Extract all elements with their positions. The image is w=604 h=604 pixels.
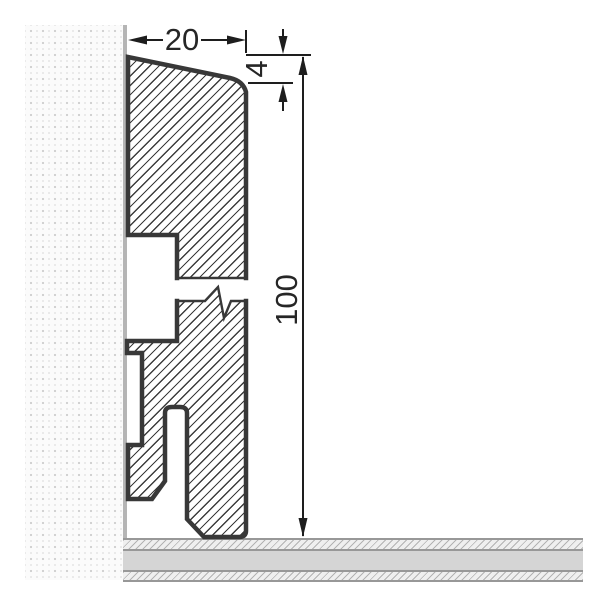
- width-arrow-left-icon: [128, 36, 147, 45]
- width-arrow-right-icon: [227, 36, 246, 45]
- height-dim-label: 100: [269, 274, 304, 326]
- outline-and-dimension-layer: 20 4 100: [0, 0, 604, 604]
- skirting-profile-lower-outline: [127, 301, 246, 537]
- skirting-profile-upper-outline: [128, 57, 246, 278]
- technical-drawing-canvas: 20 4 100: [0, 0, 604, 604]
- height-arrow-up-icon: [299, 56, 308, 75]
- dimension-width: 20: [128, 22, 246, 57]
- chamfer-arrow-up-icon: [279, 84, 288, 102]
- height-arrow-down-icon: [299, 518, 308, 537]
- width-dim-label: 20: [165, 22, 199, 57]
- break-symbol-zigzag: [177, 287, 246, 318]
- dimension-height: 100: [269, 56, 308, 537]
- chamfer-arrow-down-icon: [279, 36, 288, 54]
- chamfer-dim-label: 4: [239, 60, 274, 77]
